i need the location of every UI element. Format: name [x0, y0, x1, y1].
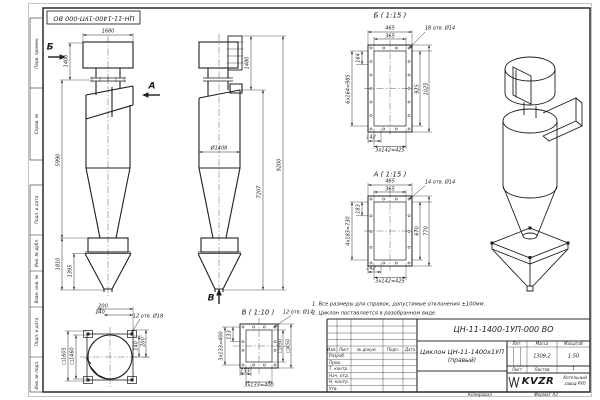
logo-zigzag-icon — [509, 377, 519, 388]
dim-seca-chain-h: 3х142=425 — [375, 280, 404, 285]
dim-secb-465: 465 — [385, 27, 395, 32]
margin-label-perv-primen: Перв. примен. — [34, 37, 38, 68]
dim-secb-chain-v: 6х164=985 — [347, 74, 352, 103]
dim-secb-365: 365 — [385, 34, 395, 39]
titleblock-row-razrab: Разраб. — [329, 354, 345, 358]
dim-secv-b133: 133 — [240, 369, 250, 374]
dim-seca-142: 142 — [366, 267, 376, 272]
view-arrow-label-v: В — [208, 295, 215, 304]
dim-front-1395: 1395 — [69, 265, 74, 278]
drawing-sheet: ЦН-11-1400-1УП-000 ВО Перв. примен. Спра… — [0, 0, 600, 400]
dim-seca-670: 670 — [415, 226, 420, 236]
revision-col-podp: Подп. — [387, 348, 399, 352]
titleblock-row-nachotd: Нач. отд. — [329, 373, 349, 377]
dim-front-1810: 1810 — [57, 258, 62, 271]
note-1: 1. Все размеры для справок, допустимые о… — [312, 302, 485, 307]
footer-format-label: Формат А3 — [534, 393, 558, 397]
dim-secb-164: 164 — [357, 53, 362, 63]
dim-secv-chain-h: 3х133=400 — [244, 384, 273, 389]
titleblock-row-nkontr: Н. контр. — [329, 380, 349, 384]
dim-plan-r200: 200 — [142, 337, 147, 347]
dim-secb-142: 142 — [366, 135, 376, 140]
note-2: 2. Циклон поставляется в разобранном вид… — [312, 311, 437, 316]
margin-label-podp-data-1: Подп. и дата — [34, 196, 38, 225]
dim-seca-chain-v: 4х183=730 — [347, 216, 352, 245]
dim-secv-133: 133 — [228, 330, 233, 340]
titleblock-lit-label: Лит. — [512, 342, 521, 346]
drawing-canvas — [0, 0, 600, 400]
revision-col-doc: № докум. — [357, 348, 377, 352]
titleblock-sheets-label: Листов — [535, 368, 550, 372]
titleblock-row-tkontr: Т. контр. — [329, 367, 348, 371]
dim-seca-183: 183 — [357, 204, 362, 214]
dim-secv-chain-v: 3х133=400 — [220, 331, 225, 360]
titleblock-sheet-label: Лист — [512, 368, 522, 372]
dim-secv-sq350: □350 — [279, 339, 284, 353]
section-v-title: В ( 1:10 ) — [242, 309, 275, 316]
side-view — [198, 36, 244, 292]
dim-plan-sq1460: □1460 — [71, 347, 76, 364]
titleblock-row-utv: Утв. — [329, 387, 338, 391]
sheet-frame — [29, 4, 592, 397]
view-arrow-label-a: А — [149, 83, 156, 92]
titleblock-doc-number: ЦН-11-1400-1УП-000 ВО — [454, 326, 554, 334]
margin-label-vzam-inv: Взам. инв. № — [34, 275, 38, 303]
view-arrow-label-b: Б — [47, 44, 54, 53]
dim-plan-r140: 140 — [135, 341, 140, 351]
titleblock-sheets-value: 1 — [572, 367, 575, 372]
dim-side-7207: 7207 — [258, 186, 263, 199]
section-a-title: А ( 1:15 ) — [374, 171, 407, 178]
callout-plan-holes: 12 отв. Ø18 — [133, 315, 163, 320]
leader-lines — [132, 32, 426, 333]
dim-plan-200: 200 — [98, 304, 108, 309]
section-b-title: Б ( 1:15 ) — [374, 12, 407, 19]
titleblock-name-line2: (правый) — [448, 358, 476, 364]
margin-label-sprav-no: Справ. № — [34, 114, 38, 134]
titleblock-scale-value: 1:50 — [568, 354, 579, 359]
dim-side-d1408: Ø1408 — [211, 146, 228, 151]
dim-seca-770: 770 — [424, 226, 429, 236]
dim-front-5990: 5990 — [57, 154, 62, 167]
callout-seca-holes: 14 отв. Ø14 — [425, 181, 455, 186]
dim-secb-925: 925 — [415, 84, 420, 94]
footer-copied-label: Копировал — [468, 393, 492, 397]
dim-front-1400: 1400 — [65, 55, 70, 68]
dim-seca-465: 465 — [385, 180, 395, 185]
callout-secv-holes: 12 отв. Ø14 — [283, 310, 313, 315]
titleblock-mass-value: 1309,2 — [533, 354, 551, 359]
revision-col-list: Лист — [339, 348, 349, 352]
dim-side-1480: 1480 — [246, 57, 251, 70]
margin-label-inv-dubl: Инв. № дубл. — [34, 239, 38, 268]
company-logo: KVZR — [522, 377, 554, 387]
titleblock-scale-label: Масштаб — [564, 342, 583, 346]
org-name-line2: завод РУП — [564, 382, 585, 386]
dim-seca-365: 365 — [385, 187, 395, 192]
margin-label-inv-podl: Инв. № подл. — [34, 360, 38, 389]
titleblock-name-line1: Циклон ЦН-11-1400х1УП — [420, 348, 504, 355]
dim-secb-1025: 1025 — [424, 82, 429, 95]
dim-plan-sq1605: □1605 — [63, 347, 68, 364]
dim-secb-chain-h: 3х142=425 — [375, 149, 404, 154]
revision-col-data: Дата — [405, 348, 415, 352]
titleblock-mass-label: Масса — [536, 342, 549, 346]
callout-secb-holes: 18 отв. Ø14 — [425, 27, 455, 32]
dim-plan-140: 140 — [95, 311, 105, 316]
org-name-line1: Котельный — [563, 376, 586, 380]
titleblock-row-prov: Пров. — [329, 360, 341, 364]
top-stamp-doc-number: ЦН-11-1400-1УП-000 ВО — [53, 14, 134, 21]
isometric-view — [491, 57, 583, 291]
dim-secv-sq450: □450 — [287, 339, 292, 353]
margin-label-podp-data-2: Подп. и дата — [34, 318, 38, 347]
dim-side-9200: 9200 — [278, 159, 283, 172]
revision-col-izm: Изм. — [327, 348, 336, 352]
dim-front-1680: 1680 — [102, 29, 115, 34]
